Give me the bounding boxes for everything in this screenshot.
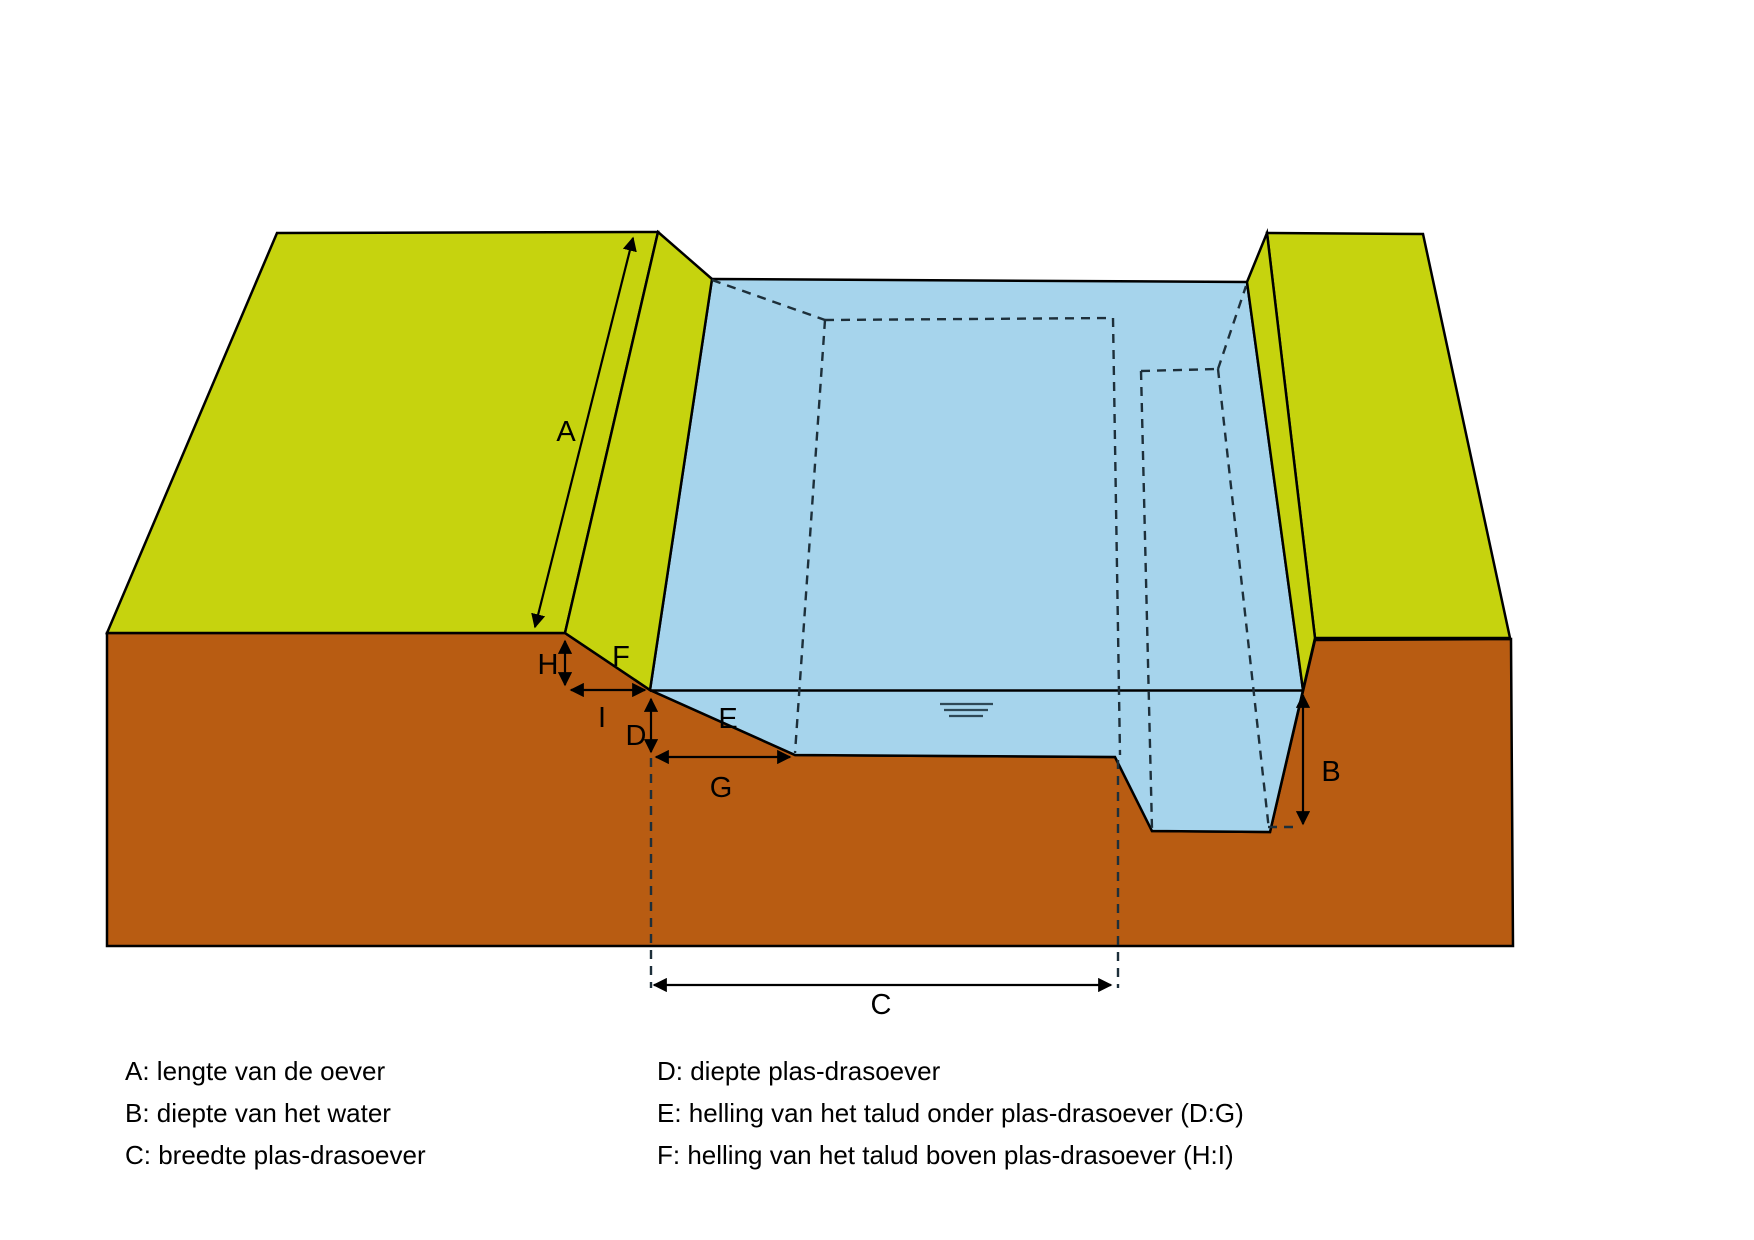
legend-item-e: E: helling van het talud onder plas-dras…	[657, 1092, 1244, 1134]
legend-item-a: A: lengte van de oever	[125, 1050, 426, 1092]
label-C: C	[871, 989, 892, 1021]
legend-item-c: C: breedte plas-drasoever	[125, 1134, 426, 1176]
label-A: A	[556, 416, 576, 448]
label-D: D	[626, 720, 647, 752]
plas-drasoever-diagram: A B C D E F G H I A: lengte van de oever…	[0, 0, 1754, 1240]
label-H: H	[538, 649, 559, 681]
label-G: G	[710, 772, 733, 804]
legend-item-b: B: diepte van het water	[125, 1092, 426, 1134]
legend-item-d: D: diepte plas-drasoever	[657, 1050, 1244, 1092]
legend-right-column: D: diepte plas-drasoever E: helling van …	[657, 1050, 1244, 1176]
label-B: B	[1321, 756, 1340, 788]
label-F: F	[612, 641, 630, 673]
legend-left-column: A: lengte van de oever B: diepte van het…	[125, 1050, 426, 1176]
label-E: E	[718, 703, 737, 735]
label-I: I	[598, 702, 606, 734]
legend-item-f: F: helling van het talud boven plas-dras…	[657, 1134, 1244, 1176]
